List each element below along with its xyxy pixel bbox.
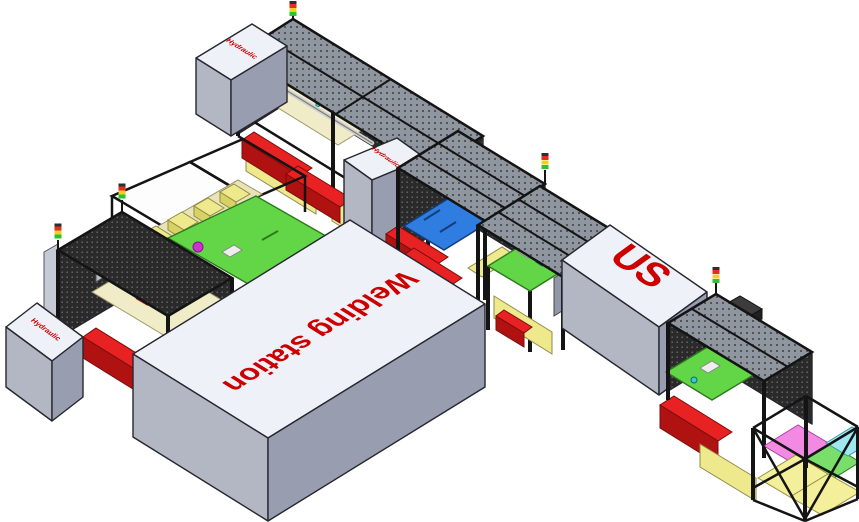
andon-yellow-light: [542, 161, 549, 165]
andon-cap: [542, 153, 549, 156]
andon-green-light: [55, 235, 62, 239]
andon-cap: [290, 1, 297, 4]
andon-yellow-light: [55, 231, 62, 235]
andon-green-light: [119, 195, 126, 199]
cad-viewport: Hydraulic: [0, 0, 859, 522]
andon-yellow-light: [119, 191, 126, 195]
andon-cap: [55, 224, 62, 227]
andon-red-light: [119, 187, 126, 191]
andon-red-light: [713, 270, 720, 274]
andon-red-light: [290, 4, 297, 8]
andon-green-light: [542, 165, 549, 169]
andon-yellow-light: [290, 8, 297, 12]
andon-green-light: [290, 12, 297, 16]
andon-red-light: [55, 227, 62, 231]
fixture-part: [193, 242, 203, 252]
andon-yellow-light: [713, 275, 720, 279]
production-line-render: Hydraulic: [0, 0, 859, 522]
andon-cap: [713, 267, 720, 270]
cyan-part: [691, 377, 697, 383]
andon-cap: [119, 184, 126, 187]
andon-green-light: [713, 279, 720, 283]
andon-red-light: [542, 156, 549, 160]
